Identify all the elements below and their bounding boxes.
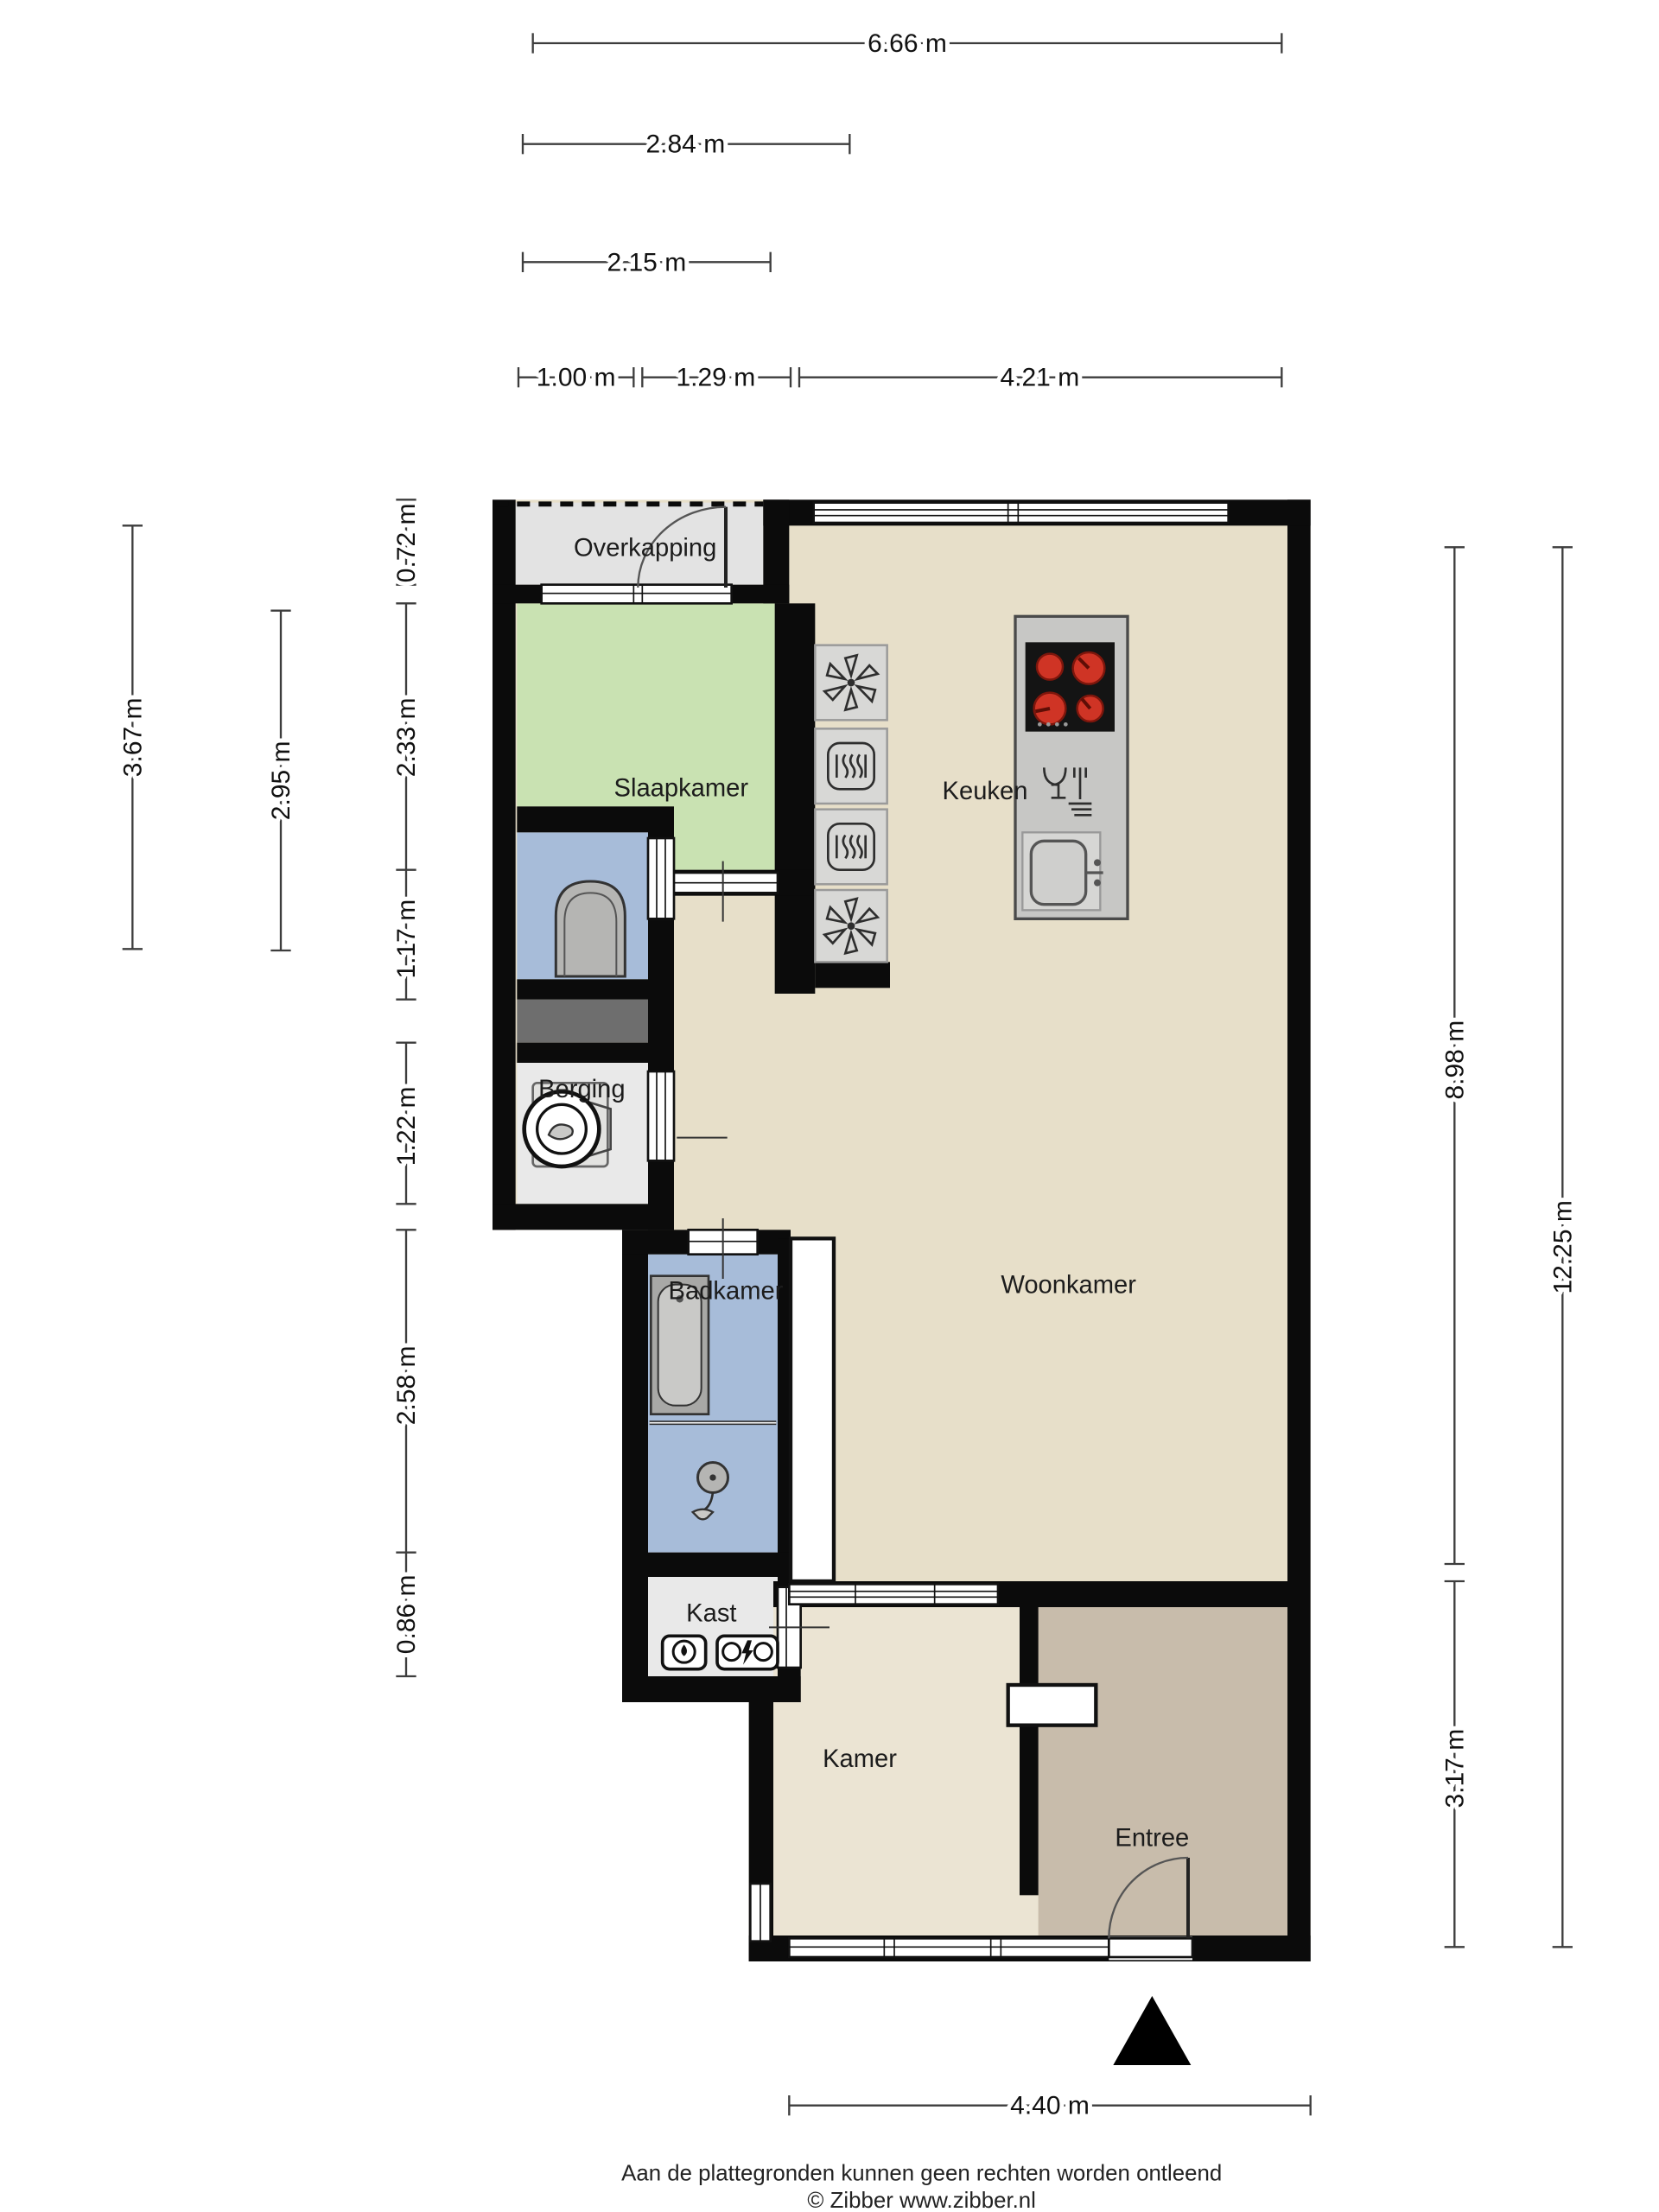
window [814,503,1229,523]
dimension-label: 1.29 m [676,364,755,392]
extractor-fan-icon [815,645,887,721]
room-label-overkapping: Overkapping [574,534,716,562]
dimension-label: 2.33 m [392,697,421,777]
room-label-kast: Kast [686,1600,736,1628]
dimension-label: 3.17 m [1440,1729,1469,1808]
dimension-label: 8.98 m [1440,1020,1469,1100]
room-label-berging: Berging [538,1076,626,1103]
dimension: 2.58 m [392,1230,421,1552]
dimension: 6.66 m [533,29,1282,58]
dimension-label: 1.00 m [537,364,616,392]
wall-segment [493,499,516,1230]
dimension: 12.25 m [1548,547,1577,1947]
dimensions-right: 8.98 m 3.17 m 12.25 m [1440,547,1577,1947]
floor-kamer [773,1607,1039,1935]
oven-icon [815,728,887,804]
dimensions-top: 6.66 m 2.84 m 2.15 m 1.00 m 1.29 m 4.21 … [518,29,1281,392]
room-label-woonkamer: Woonkamer [1001,1272,1136,1300]
dimension-label: 4.40 m [1010,2092,1090,2120]
wall-segment [1020,1607,1039,1895]
dimension-label: 0.72 m [392,503,421,582]
dimension: 3.67 m [118,525,147,949]
toilet-door [648,838,674,918]
dimension: 2.95 m [267,611,296,950]
dimension: 0.72 m [392,499,421,584]
wall-segment [517,1043,648,1063]
dimension-label: 3.67 m [118,697,147,777]
sink-icon [1022,832,1103,910]
window [542,585,732,604]
dimension: 2.33 m [392,603,421,869]
room-label-kamer: Kamer [823,1745,897,1773]
cooktop-icon [1026,642,1115,731]
wall-segment [648,1553,778,1577]
floorplan-page: Overkapping Slaapkamer Keuken Berging Ba… [0,0,1659,2212]
dimension-label: 1.17 m [392,899,421,979]
dimension: 3.17 m [1440,1581,1469,1947]
wall-segment [1287,499,1311,1961]
kitchen-appliances [815,645,887,963]
footer: Aan de plattegronden kunnen geen rechten… [621,2161,1222,2212]
dimension: 2.15 m [523,248,771,276]
dimension-label: 6.66 m [868,29,947,58]
floors [493,499,1311,1961]
dimensions-left: 3.67 m 2.95 m 0.72 m 2.33 m 1.17 m 1.22 … [118,499,421,1676]
wall-segment [622,1230,648,1702]
dimension: 1.00 m [518,364,633,392]
dimension: 4.21 m [799,364,1281,392]
dimension: 0.86 m [392,1553,421,1676]
dimension-label: 0.86 m [392,1574,421,1654]
room-label-badkamer: Badkamer [669,1277,784,1305]
window [789,1938,1109,1957]
disclaimer-text: Aan de plattegronden kunnen geen rechten… [621,2161,1222,2185]
wall-segment [622,1676,801,1702]
floor-entree [1039,1607,1287,1935]
wall-segment [517,806,648,832]
kitchen-island [1015,616,1128,918]
entrance-marker-icon [1113,1996,1191,2065]
duct-column [791,1238,834,1581]
dimension-label: 12.25 m [1548,1200,1577,1294]
window [750,1884,770,1942]
dimension-label: 2.15 m [607,248,686,276]
dimension-label: 2.95 m [267,741,296,820]
dimension: 1.29 m [642,364,791,392]
dimension: 1.17 m [392,870,421,1000]
dimensions-bottom: 4.40 m [789,2092,1310,2120]
meter-icon [663,1636,778,1669]
toilet-icon [556,881,625,976]
oven-icon [815,810,887,885]
dimension: 8.98 m [1440,547,1469,1564]
dimension: 4.40 m [789,2092,1310,2120]
copyright-text: © Zibber www.zibber.nl [807,2189,1036,2212]
dimension-label: 2.84 m [645,130,725,159]
dimension-label: 4.21 m [1000,364,1079,392]
entree-closet [1008,1685,1096,1726]
dimension-label: 1.22 m [392,1086,421,1166]
wall-segment [517,979,648,999]
wall-segment [493,1204,674,1230]
floor-shaft [517,1000,648,1043]
wall-segment [775,603,816,994]
dimension: 1.22 m [392,1043,421,1205]
room-label-slaapkamer: Slaapkamer [614,775,749,803]
dimension-label: 2.58 m [392,1345,421,1425]
room-label-entree: Entree [1115,1825,1189,1853]
dimension: 2.84 m [523,130,849,159]
extractor-fan-icon [815,890,887,962]
room-label-keuken: Keuken [943,778,1028,805]
interior-window [789,1584,998,1604]
wall-segment [815,962,890,988]
floorplan-drawing: Overkapping Slaapkamer Keuken Berging Ba… [0,0,1659,2212]
